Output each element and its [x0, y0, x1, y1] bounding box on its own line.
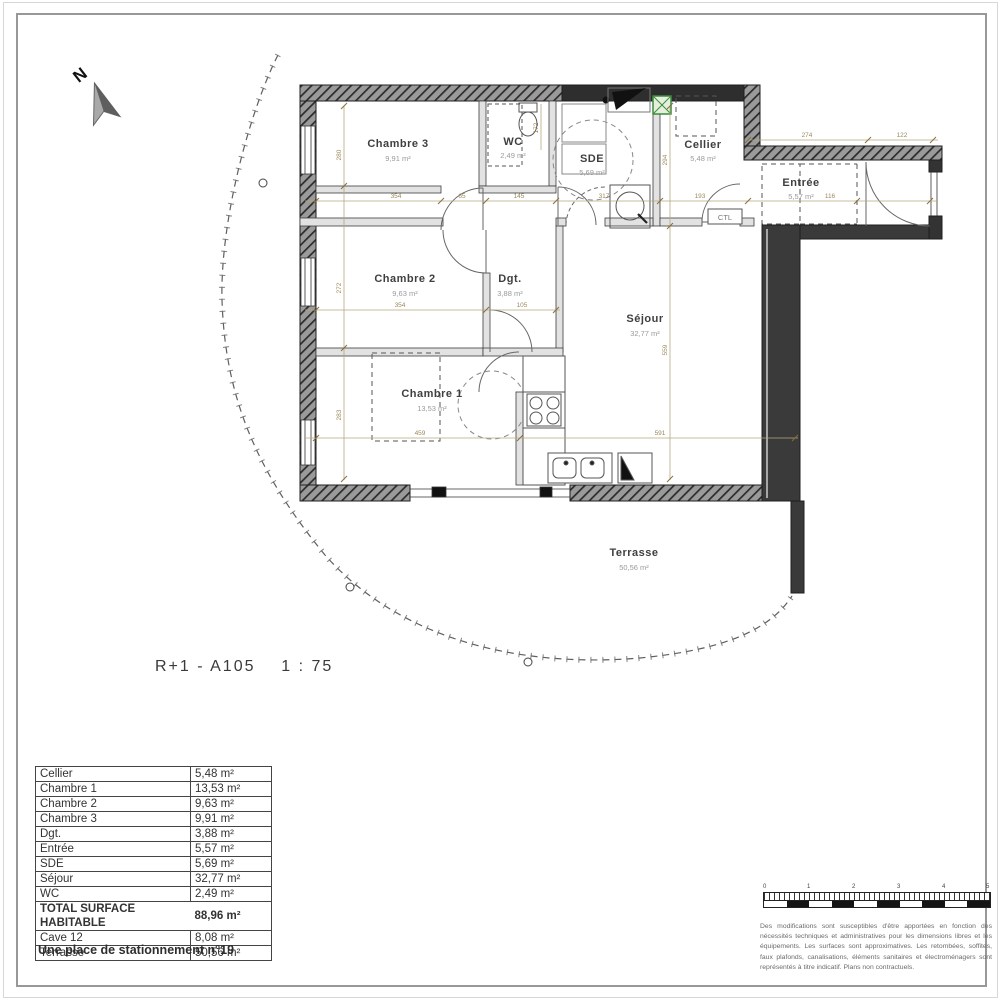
table-row: WC2,49 m²	[36, 887, 272, 902]
room-label-wc: WC	[503, 136, 522, 148]
svg-text:283: 283	[336, 409, 343, 420]
survey-point	[346, 583, 354, 591]
svg-text:65: 65	[458, 193, 466, 200]
svg-text:13,53 m²: 13,53 m²	[417, 404, 447, 413]
kitchen	[523, 356, 652, 485]
north-label: N	[69, 64, 90, 87]
surface-table: Cellier5,48 m² Chambre 113,53 m² Chambre…	[35, 766, 272, 961]
table-row: Séjour32,77 m²	[36, 872, 272, 887]
survey-point	[259, 179, 267, 187]
table-row: Cellier5,48 m²	[36, 767, 272, 782]
svg-text:280: 280	[336, 149, 343, 160]
scale-bar-ruler	[763, 892, 991, 901]
plan-reference-title: R+1 - A105 1 : 75	[155, 658, 333, 676]
table-row: Dgt.3,88 m²	[36, 827, 272, 842]
svg-text:116: 116	[825, 193, 836, 200]
table-row: Chambre 113,53 m²	[36, 782, 272, 797]
svg-text:2,49 m²: 2,49 m²	[500, 151, 526, 160]
floor-plan-sheet: N	[0, 0, 1000, 1000]
svg-text:272: 272	[336, 282, 343, 293]
table-row-total: TOTAL SURFACE HABITABLE88,96 m²	[36, 902, 272, 931]
room-label-chambre3: Chambre 3	[367, 138, 428, 150]
room-label-sde: SDE	[580, 153, 604, 165]
svg-text:5,57 m²: 5,57 m²	[788, 192, 814, 201]
svg-text:459: 459	[415, 430, 426, 437]
room-label-terrasse: Terrasse	[609, 547, 658, 559]
disclaimer-text: Des modifications sont susceptibles d'êt…	[760, 922, 992, 973]
scale-bar-blocks	[763, 901, 991, 908]
room-label-chambre1: Chambre 1	[401, 388, 462, 400]
svg-text:3,88 m²: 3,88 m²	[497, 289, 523, 298]
svg-text:317: 317	[599, 193, 610, 200]
svg-text:294: 294	[662, 154, 669, 165]
svg-text:354: 354	[395, 302, 406, 309]
floor-plan-drawing: N	[0, 0, 1000, 760]
svg-text:32,77 m²: 32,77 m²	[630, 329, 660, 338]
survey-point	[524, 658, 532, 666]
room-label-cellier: Cellier	[684, 139, 721, 151]
north-arrow-icon: N	[69, 64, 120, 125]
ctl-label: CTL	[718, 213, 732, 222]
svg-text:50,56 m²: 50,56 m²	[619, 563, 649, 572]
svg-text:559: 559	[662, 344, 669, 355]
room-label-chambre2: Chambre 2	[374, 273, 435, 285]
svg-text:122: 122	[897, 132, 908, 139]
svg-text:274: 274	[802, 132, 813, 139]
room-label-sejour: Séjour	[626, 313, 663, 325]
svg-text:5,48 m²: 5,48 m²	[690, 154, 716, 163]
vent-icon	[653, 96, 671, 114]
svg-text:354: 354	[391, 193, 402, 200]
svg-text:193: 193	[695, 193, 706, 200]
table-row: Chambre 39,91 m²	[36, 812, 272, 827]
svg-text:172: 172	[533, 122, 540, 133]
table-row: Entrée5,57 m²	[36, 842, 272, 857]
room-label-entree: Entrée	[782, 177, 819, 189]
room-label-dgt: Dgt.	[498, 273, 521, 285]
table-row: Chambre 29,63 m²	[36, 797, 272, 812]
parking-note: Une place de stationnement n°19	[38, 943, 234, 957]
sink-icon	[548, 453, 612, 483]
svg-text:145: 145	[514, 193, 525, 200]
table-row: SDE5,69 m²	[36, 857, 272, 872]
svg-text:9,63 m²: 9,63 m²	[392, 289, 418, 298]
scale-bar: 0 1 2 3 4 5	[763, 884, 991, 914]
svg-text:591: 591	[655, 430, 666, 437]
svg-text:105: 105	[517, 302, 528, 309]
scale-bar-numbers: 0 1 2 3 4 5	[763, 884, 991, 892]
svg-text:5,69 m²: 5,69 m²	[579, 168, 605, 177]
svg-text:9,91 m²: 9,91 m²	[385, 154, 411, 163]
